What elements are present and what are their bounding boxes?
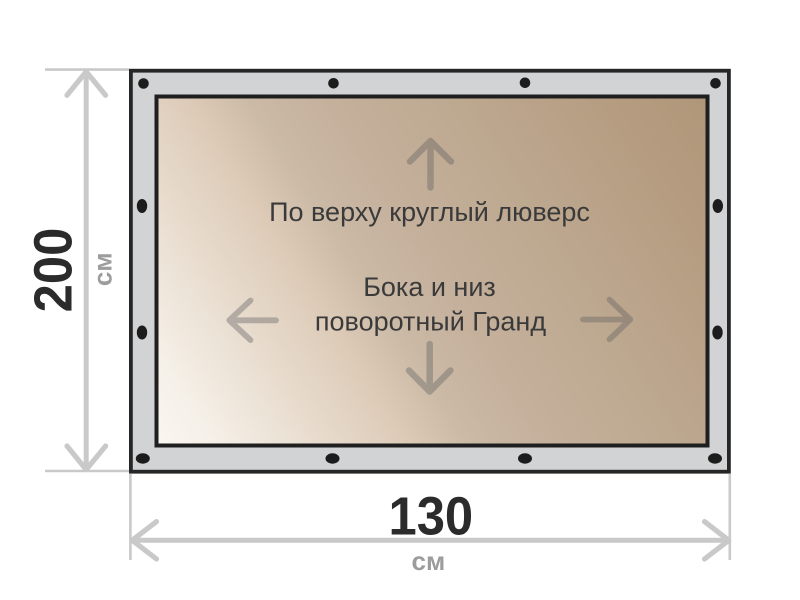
svg-text:130: 130 xyxy=(388,487,473,547)
svg-text:Бока и низ: Бока и низ xyxy=(363,272,496,302)
svg-text:поворотный Гранд: поворотный Гранд xyxy=(315,307,546,337)
svg-text:см: см xyxy=(412,546,446,576)
svg-text:200: 200 xyxy=(24,228,84,313)
svg-text:см: см xyxy=(88,252,118,286)
svg-text:По верху круглый люверс: По верху круглый люверс xyxy=(269,197,590,227)
